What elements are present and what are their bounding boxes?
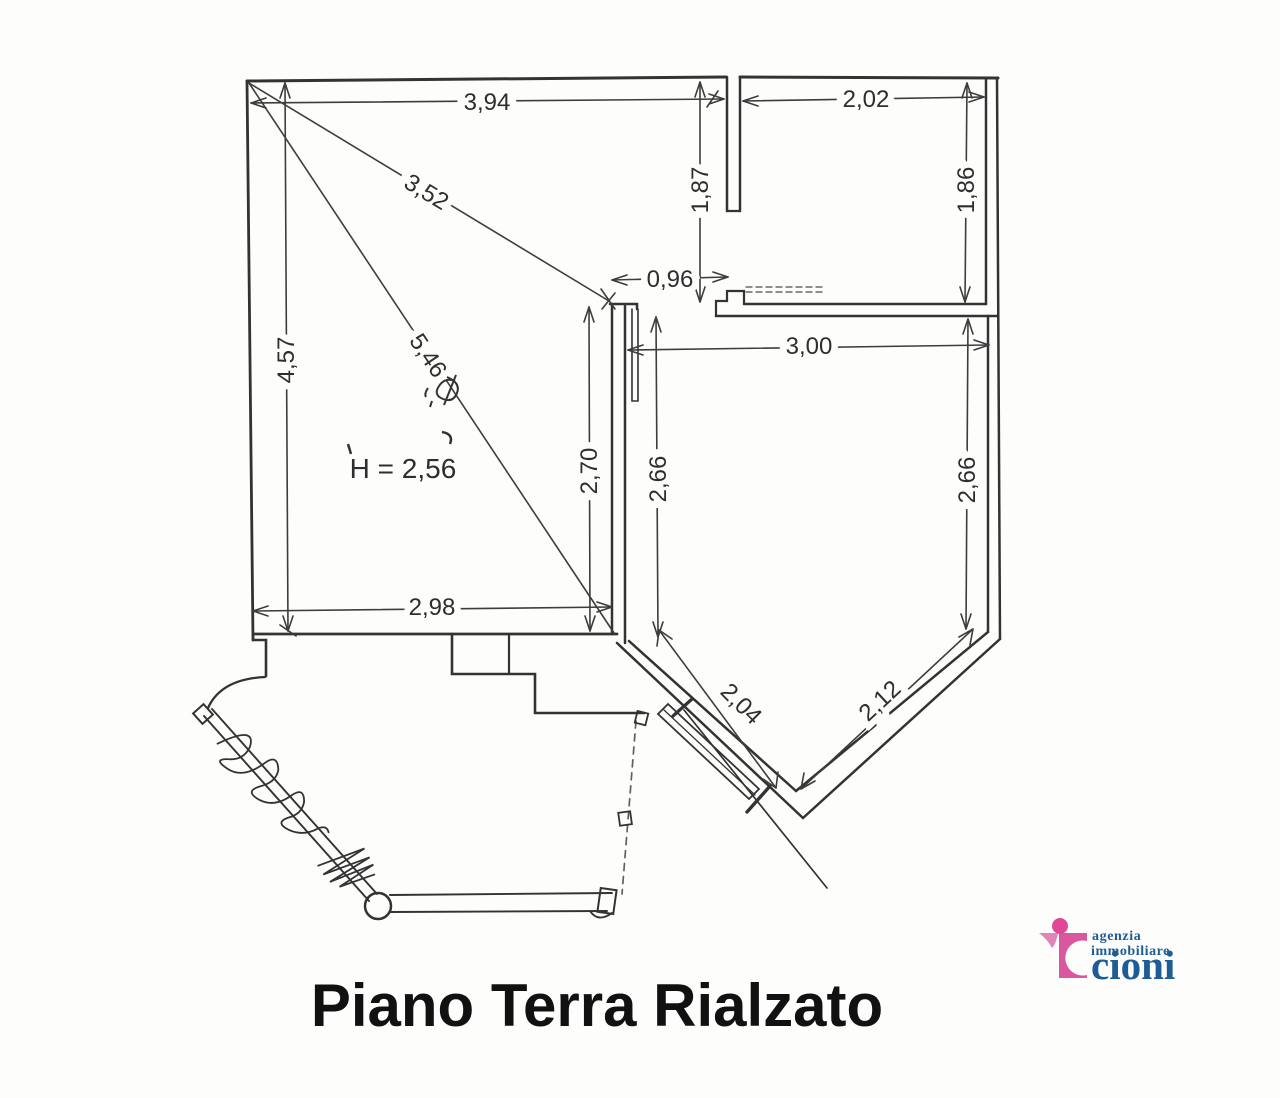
svg-text:2,66: 2,66 — [645, 456, 672, 503]
svg-text:cioni: cioni — [1091, 942, 1175, 988]
svg-text:2,70: 2,70 — [576, 448, 603, 495]
svg-text:0,96: 0,96 — [647, 266, 694, 293]
svg-text:Piano Terra Rialzato: Piano Terra Rialzato — [311, 972, 883, 1039]
svg-text:2,02: 2,02 — [843, 86, 890, 113]
svg-text:4,57: 4,57 — [273, 337, 300, 384]
svg-text:H = 2,56: H = 2,56 — [350, 453, 457, 484]
svg-text:1,86: 1,86 — [953, 167, 980, 214]
svg-text:3,00: 3,00 — [786, 333, 833, 360]
svg-text:3,94: 3,94 — [464, 89, 511, 116]
svg-text:2,98: 2,98 — [409, 594, 456, 621]
svg-text:1,87: 1,87 — [687, 167, 714, 214]
svg-text:2,66: 2,66 — [954, 457, 981, 504]
